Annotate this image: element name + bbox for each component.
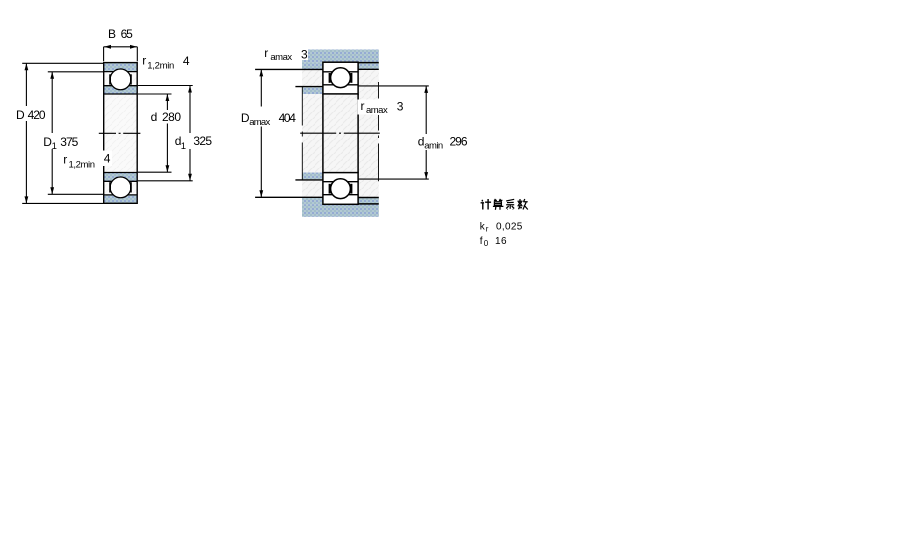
svg-text:375: 375 <box>60 135 78 149</box>
svg-text:D: D <box>16 108 25 122</box>
svg-text:325: 325 <box>193 134 212 148</box>
svg-text:1: 1 <box>181 141 186 152</box>
svg-text:3: 3 <box>301 47 308 61</box>
svg-text:amax: amax <box>270 52 292 63</box>
svg-text:65: 65 <box>121 27 134 41</box>
svg-text:3: 3 <box>397 100 404 114</box>
svg-text:16: 16 <box>495 236 507 247</box>
svg-text:amax: amax <box>249 117 270 128</box>
svg-text:280: 280 <box>162 110 181 124</box>
svg-text:404: 404 <box>279 111 297 125</box>
svg-text:amax: amax <box>366 105 388 116</box>
svg-text:1,2min: 1,2min <box>147 60 174 71</box>
svg-text:d: d <box>151 110 158 124</box>
svg-text:1,2min: 1,2min <box>69 159 96 170</box>
svg-text:r: r <box>361 99 365 113</box>
svg-text:r: r <box>264 46 268 60</box>
svg-text:r: r <box>142 54 146 68</box>
svg-text:r: r <box>486 225 489 234</box>
svg-text:296: 296 <box>450 134 468 148</box>
svg-text:4: 4 <box>104 152 111 166</box>
svg-text:amin: amin <box>424 141 443 152</box>
svg-text:B: B <box>108 27 116 41</box>
svg-text:420: 420 <box>28 108 46 122</box>
svg-text:f: f <box>480 236 483 247</box>
svg-text:4: 4 <box>183 54 190 68</box>
svg-text:0: 0 <box>484 239 489 248</box>
svg-text:r: r <box>63 153 67 167</box>
svg-text:0,025: 0,025 <box>496 222 523 233</box>
svg-text:1: 1 <box>52 141 57 152</box>
